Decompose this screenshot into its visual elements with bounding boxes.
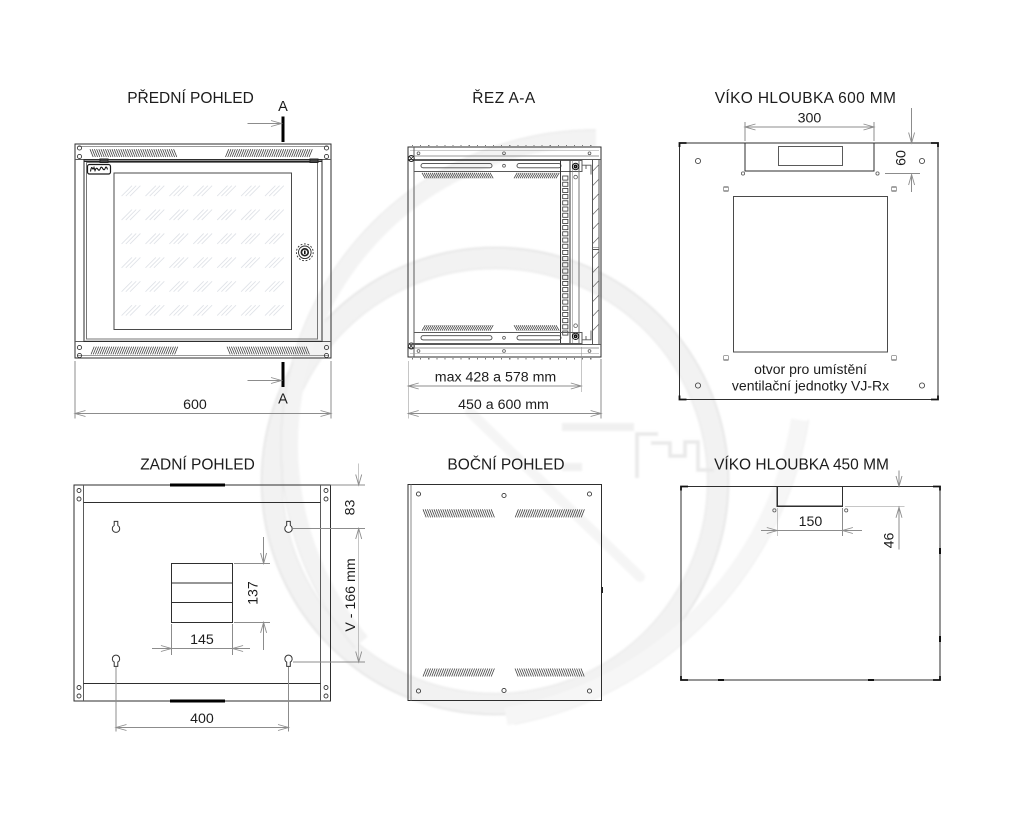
svg-text:A: A xyxy=(278,99,288,115)
svg-text:VÍKO HLOUBKA 450 MM: VÍKO HLOUBKA 450 MM xyxy=(714,457,889,474)
svg-text:400: 400 xyxy=(190,711,214,727)
svg-text:max 428 a 578 mm: max 428 a 578 mm xyxy=(435,370,556,386)
svg-text:PŘEDNÍ POHLED: PŘEDNÍ POHLED xyxy=(127,90,254,107)
svg-text:300: 300 xyxy=(798,111,822,127)
svg-text:BOČNÍ POHLED: BOČNÍ POHLED xyxy=(447,457,564,474)
svg-text:150: 150 xyxy=(799,514,823,530)
svg-text:46: 46 xyxy=(882,533,898,549)
svg-text:V - 166 mm: V - 166 mm xyxy=(343,558,359,631)
svg-text:450 a 600 mm: 450 a 600 mm xyxy=(458,397,549,413)
svg-text:ventilační jednotky VJ-Rx: ventilační jednotky VJ-Rx xyxy=(732,378,889,394)
svg-text:otvor pro umístění: otvor pro umístění xyxy=(754,361,867,377)
svg-text:A: A xyxy=(278,392,288,408)
svg-text:145: 145 xyxy=(190,632,214,648)
svg-text:60: 60 xyxy=(894,150,910,166)
svg-text:ŘEZ A-A: ŘEZ A-A xyxy=(472,90,536,107)
svg-text:ZADNÍ POHLED: ZADNÍ POHLED xyxy=(140,457,255,474)
svg-text:600: 600 xyxy=(183,397,207,413)
svg-text:137: 137 xyxy=(246,581,262,605)
svg-text:83: 83 xyxy=(343,500,359,516)
svg-text:VÍKO HLOUBKA 600 MM: VÍKO HLOUBKA 600 MM xyxy=(715,90,897,107)
